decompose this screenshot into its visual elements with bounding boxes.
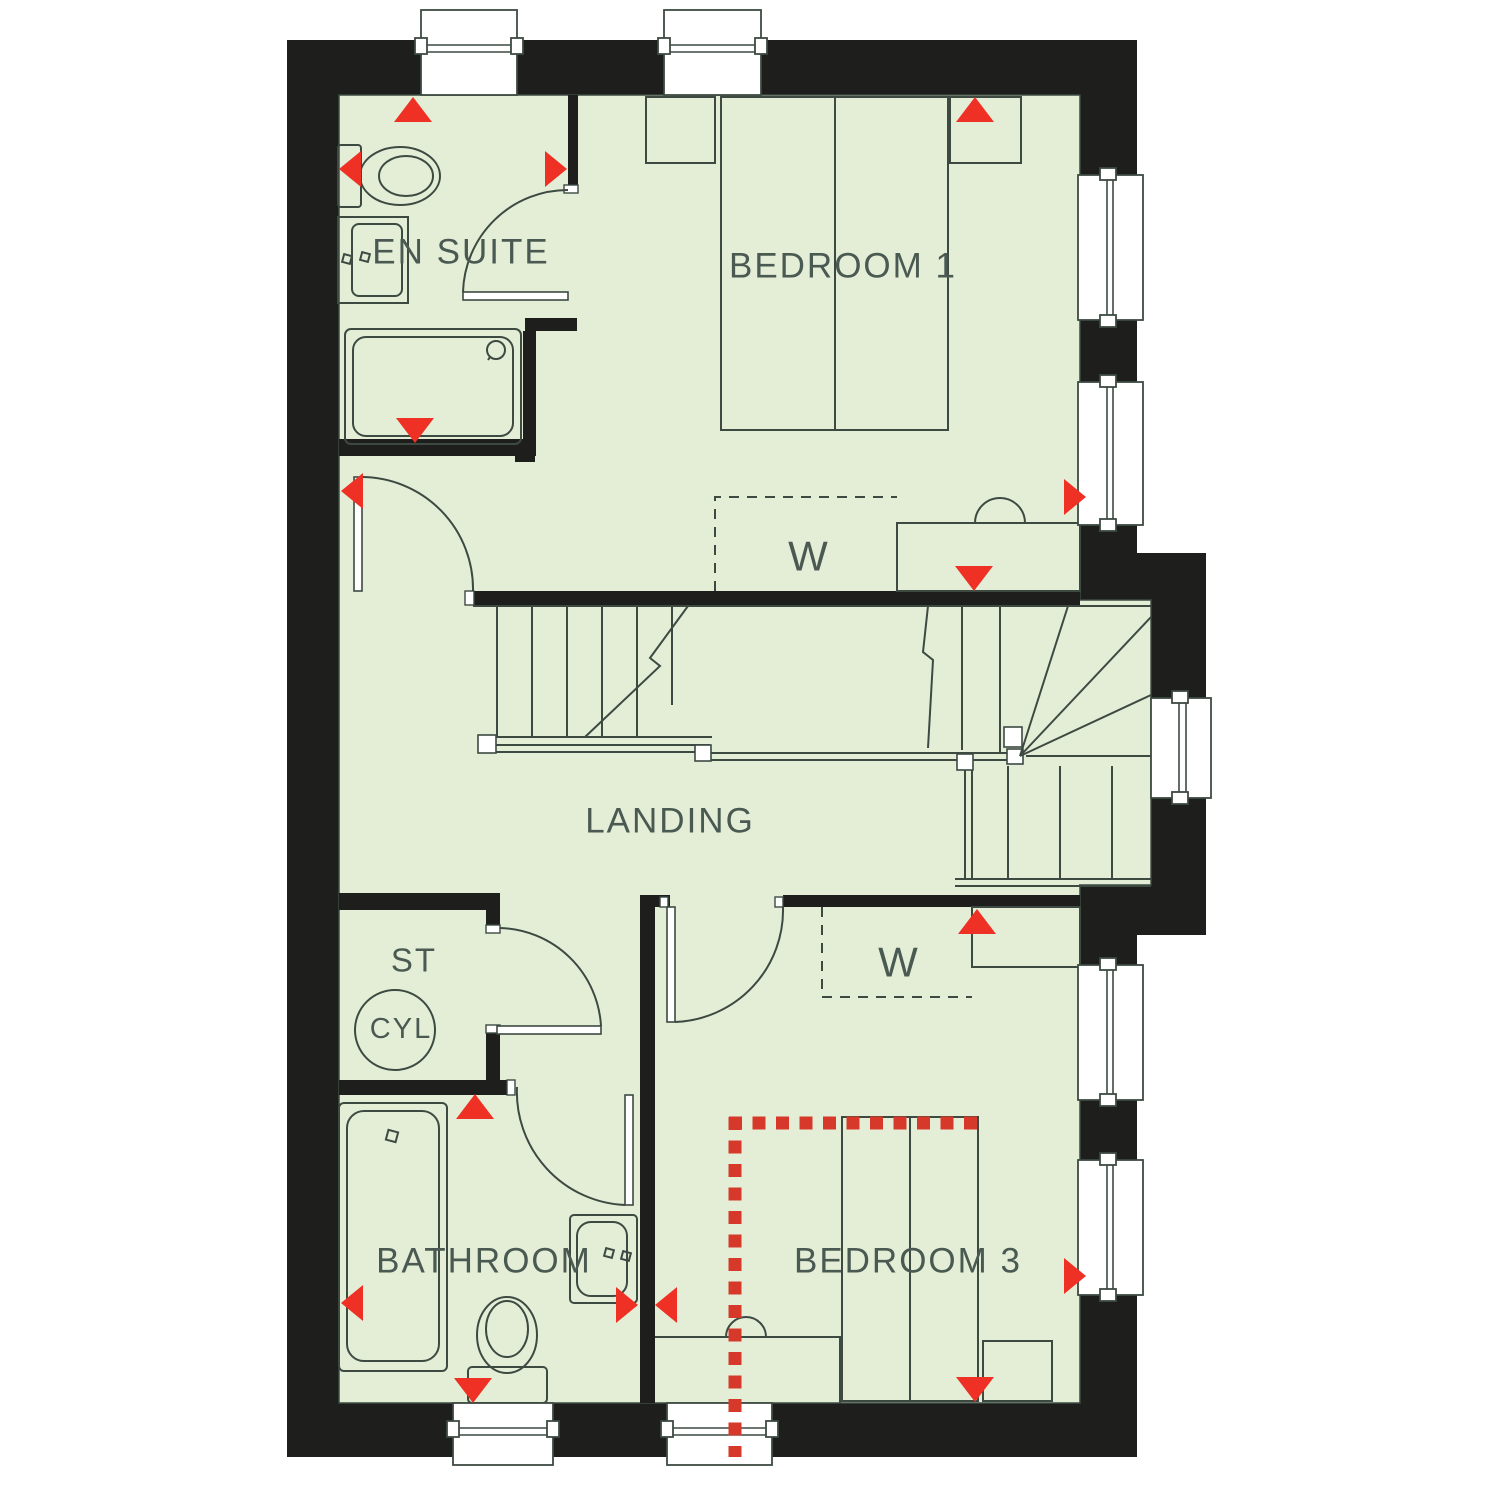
ensuite-wall-stub [515,456,535,462]
door-stop [486,925,500,933]
door-stop [465,591,474,605]
door-stop [660,897,668,907]
room-label-bedroom-1: BEDROOM 1 [729,247,957,286]
floor-plan-page: EN SUITE BEDROOM 1 LANDING ST CYL BATHRO… [0,0,1500,1500]
ensuite-stub-wall [525,318,577,331]
floor-plan-drawing: EN SUITE BEDROOM 1 LANDING ST CYL BATHRO… [0,0,1500,1500]
window-ensuite-top [415,10,523,95]
bathroom-bedroom3-wall [640,895,655,1403]
ensuite-partition-wall [568,95,578,193]
room-label-storage: ST [391,942,437,979]
window-bedroom1-right-1 [1078,168,1143,327]
window-bedroom1-right-2 [1078,375,1143,531]
bedroom3-top-wall [783,895,1080,907]
stair-bay-floor [1079,600,1151,885]
room-label-landing: LANDING [585,802,755,841]
newel-post [695,745,711,761]
door-leaf [497,1026,601,1034]
label-wardrobe-bedroom-3: W [878,939,920,986]
window-bedroom1-top [658,10,767,95]
shower-side-wall [523,331,536,456]
newel-post [957,754,973,770]
window-bedroom3-right-2 [1078,1153,1143,1301]
label-cylinder: CYL [370,1013,432,1045]
room-label-en-suite: EN SUITE [372,233,549,272]
window-bathroom-bottom [447,1403,559,1465]
ensuite-bottom-wall [339,439,535,456]
room-label-bedroom-3: BEDROOM 3 [794,1242,1022,1281]
storage-top-wall [339,893,500,910]
newel-post [478,735,496,753]
door-stop [564,185,578,193]
door-leaf [667,907,675,1022]
storage-bottom-wall [339,1080,515,1095]
window-stair-bay [1151,691,1211,804]
storage-side-wall-upper [486,893,500,925]
bedroom1-landing-wall [473,591,1080,605]
newel-post [1004,727,1022,747]
window-bedroom3-bottom [661,1403,778,1465]
room-label-bathroom: BATHROOM [376,1242,592,1281]
door-stop [775,897,783,907]
door-stop [507,1080,515,1095]
label-wardrobe-bedroom-1: W [788,533,830,580]
window-bedroom3-right-1 [1078,958,1143,1106]
door-leaf [463,292,568,300]
door-leaf [625,1095,633,1205]
